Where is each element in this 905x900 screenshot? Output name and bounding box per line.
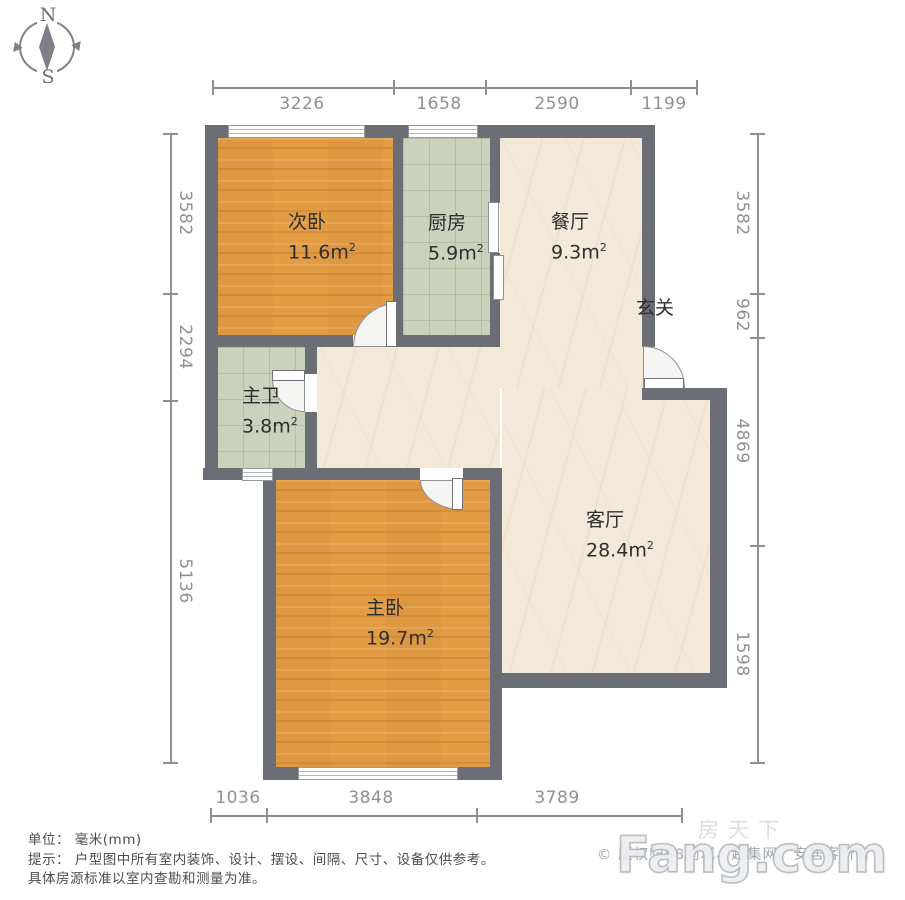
dim-value: 5136 <box>175 558 195 603</box>
room-name: 次卧 <box>288 210 356 235</box>
label-bathroom: 主卫 3.8m2 <box>242 384 298 439</box>
wall-bath-bottom-a <box>203 468 242 480</box>
label-entry: 玄关 <box>636 296 674 321</box>
wall-bedroom1-right <box>490 468 502 780</box>
dim-tick <box>163 762 178 764</box>
room-name: 客厅 <box>586 508 654 533</box>
floor-hallway <box>317 335 500 468</box>
dim-tick <box>750 337 765 339</box>
footer-unit-note: 单位： 毫米(mm) <box>28 828 142 848</box>
wall-bath-right-lower <box>305 412 317 468</box>
dim-tick <box>485 80 487 95</box>
dim-line <box>210 815 682 817</box>
dim-value: 2294 <box>175 324 195 369</box>
window-bedroom1 <box>298 767 458 780</box>
door-leaf-entry <box>644 378 684 389</box>
dim-line <box>170 133 172 763</box>
dim-tick <box>210 808 212 823</box>
dim-value: 1598 <box>732 631 752 676</box>
room-area: 19.7m2 <box>366 621 434 651</box>
dim-value: 4869 <box>732 418 752 463</box>
dim-value: 3226 <box>279 94 324 114</box>
wall-living-bottom <box>490 673 727 688</box>
dim-tick <box>681 808 683 823</box>
dim-tick <box>750 133 765 135</box>
wall-bedroom1-left <box>263 480 276 780</box>
wall-bedroom1-top-a <box>273 468 420 480</box>
wall-top-b <box>365 125 408 138</box>
wall-right-lower <box>710 388 727 688</box>
sliding-door-panel-1 <box>488 202 499 253</box>
compass-south-label: S <box>41 66 54 88</box>
footer-disclaimer-line2: 具体房源标准以室内查勘和测量为准。 <box>28 867 266 887</box>
dim-tick <box>750 293 765 295</box>
footer-disclaimer-line1: 提示： 户型图中所有室内装饰、设计、摆设、间隔、尺寸、设备仅供参考。 <box>28 848 495 868</box>
sliding-door-panel-2 <box>493 255 504 300</box>
label-living: 客厅 28.4m2 <box>586 508 654 563</box>
window-bathroom <box>242 468 273 481</box>
watermark-fang-logo: Fang.com <box>616 826 887 884</box>
dim-line <box>212 87 697 89</box>
wall-kitchen-dining-upper <box>490 138 500 203</box>
dim-tick <box>750 545 765 547</box>
dim-value: 3848 <box>348 788 393 808</box>
floorplan-canvas: N S 次卧 11.6m2 <box>0 0 905 900</box>
door-leaf-bathroom <box>272 370 305 381</box>
dim-value: 3582 <box>175 190 195 235</box>
dim-value: 1658 <box>416 94 461 114</box>
room-area: 11.6m2 <box>288 235 356 265</box>
wall-left-outer <box>205 125 218 480</box>
dim-value: 962 <box>732 298 752 332</box>
dim-tick <box>750 762 765 764</box>
dim-tick <box>266 808 268 823</box>
room-area: 9.3m2 <box>551 235 607 265</box>
room-name: 厨房 <box>428 211 484 236</box>
room-name: 餐厅 <box>551 210 607 235</box>
room-area: 3.8m2 <box>242 409 298 439</box>
window-kitchen <box>408 125 478 138</box>
wall-bedroom1-bottom-b <box>458 767 502 780</box>
room-area: 28.4m2 <box>586 533 654 563</box>
compass-north-label: N <box>40 4 57 26</box>
dim-value: 3789 <box>534 788 579 808</box>
room-name: 主卧 <box>366 596 434 621</box>
room-name: 主卫 <box>242 384 298 409</box>
dim-line <box>757 133 759 763</box>
label-kitchen: 厨房 5.9m2 <box>428 211 484 266</box>
wall-kitchen-bottom <box>397 335 500 347</box>
door-leaf-bedroom1 <box>452 478 463 510</box>
compass: N S <box>10 6 86 90</box>
dim-tick <box>163 400 178 402</box>
dim-value: 1036 <box>215 788 260 808</box>
dim-value: 3582 <box>732 190 752 235</box>
door-leaf-bedroom2 <box>386 301 397 347</box>
dim-tick <box>163 293 178 295</box>
wall-bedroom1-bottom-a <box>263 767 298 780</box>
label-bedroom1: 主卧 19.7m2 <box>366 596 434 651</box>
dim-tick <box>696 80 698 95</box>
room-name: 玄关 <box>636 296 674 321</box>
window-bedroom2 <box>228 125 365 138</box>
dim-tick <box>393 80 395 95</box>
dim-tick <box>630 80 632 95</box>
dim-tick <box>476 808 478 823</box>
wall-bedroom2-bottom-left <box>205 335 353 347</box>
wall-top-c <box>478 125 655 138</box>
wall-bath-right-upper <box>305 347 317 374</box>
dim-tick <box>163 133 178 135</box>
room-area: 5.9m2 <box>428 236 484 266</box>
dim-value: 1199 <box>641 94 686 114</box>
dim-value: 2590 <box>534 94 579 114</box>
label-bedroom2: 次卧 11.6m2 <box>288 210 356 265</box>
dim-tick <box>212 80 214 95</box>
label-dining: 餐厅 9.3m2 <box>551 210 607 265</box>
